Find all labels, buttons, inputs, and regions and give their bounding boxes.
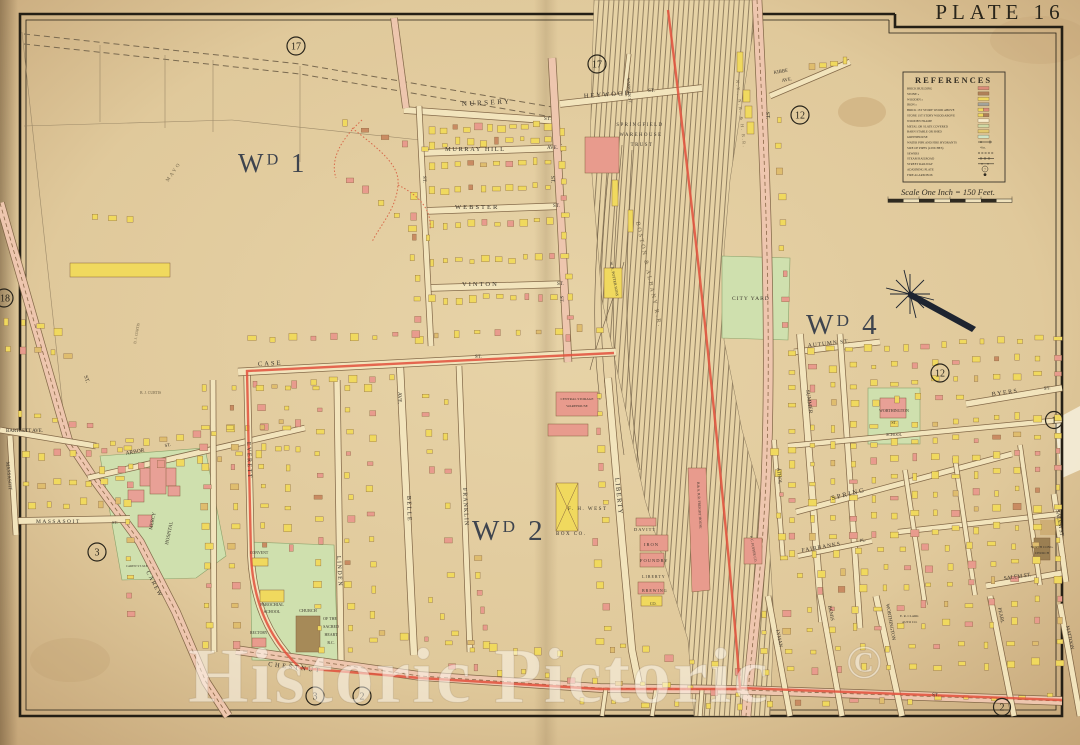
building xyxy=(823,701,830,706)
building xyxy=(871,458,877,465)
building xyxy=(892,513,898,519)
building xyxy=(545,160,551,164)
building xyxy=(1055,372,1062,376)
building xyxy=(127,593,132,598)
building xyxy=(204,603,208,608)
building xyxy=(561,213,569,217)
building xyxy=(890,382,898,386)
building xyxy=(54,479,61,485)
building xyxy=(87,423,93,428)
building xyxy=(232,386,236,390)
building xyxy=(812,668,818,675)
building xyxy=(315,517,323,522)
place-label-clark-auto: E. R. CLARK xyxy=(900,614,919,618)
building xyxy=(495,222,501,226)
building xyxy=(544,124,552,131)
building xyxy=(850,699,859,703)
building xyxy=(506,161,513,166)
building xyxy=(897,606,904,611)
building xyxy=(1047,693,1053,697)
building xyxy=(780,220,786,225)
building xyxy=(495,330,501,336)
building xyxy=(789,371,795,375)
building xyxy=(193,431,201,438)
building xyxy=(248,336,256,341)
place-label-foundry: FOUNDRY xyxy=(640,558,669,563)
building xyxy=(912,380,918,384)
building xyxy=(872,532,876,538)
legend-item-label: FIRE ALARM BOX xyxy=(907,173,934,177)
building xyxy=(871,380,878,386)
building xyxy=(1058,596,1063,602)
building xyxy=(994,357,998,361)
building xyxy=(887,665,891,670)
building xyxy=(232,582,240,589)
building xyxy=(831,479,835,484)
building xyxy=(870,425,878,429)
building xyxy=(345,408,350,412)
building xyxy=(567,316,573,320)
building xyxy=(547,218,554,225)
building xyxy=(790,518,795,523)
building xyxy=(518,160,526,165)
building xyxy=(205,543,213,549)
svg-text:18: 18 xyxy=(0,294,10,305)
building xyxy=(430,259,434,266)
building xyxy=(1058,617,1063,624)
building xyxy=(456,298,462,305)
building xyxy=(289,333,297,340)
building xyxy=(285,485,290,492)
building xyxy=(783,271,787,277)
building xyxy=(1015,354,1020,360)
building xyxy=(1015,450,1020,455)
building xyxy=(884,564,888,569)
building xyxy=(468,161,474,166)
building xyxy=(568,294,573,300)
building xyxy=(891,361,897,366)
legend-item-label: BARN STABLE OR SHED xyxy=(907,130,942,134)
building xyxy=(415,316,421,322)
building xyxy=(598,412,603,416)
legend-item-label: WATER PIPE AND FIRE HYDRANTS xyxy=(907,141,957,145)
building xyxy=(497,126,505,133)
building xyxy=(1007,661,1015,668)
building xyxy=(789,498,795,502)
building xyxy=(953,456,959,463)
building xyxy=(1013,503,1021,509)
building xyxy=(283,426,291,430)
building xyxy=(838,586,845,592)
building xyxy=(925,566,933,573)
building xyxy=(998,337,1005,343)
building xyxy=(990,622,994,628)
atlas-scan: PLATE 16 xyxy=(0,0,1080,745)
building xyxy=(933,666,941,671)
building xyxy=(144,439,150,446)
building xyxy=(441,189,449,195)
building xyxy=(811,515,815,522)
building xyxy=(956,395,963,399)
place-label-warehouse-trust: SPRINGFIELD xyxy=(616,123,663,128)
building xyxy=(995,491,999,497)
place-label-west-box: BOX CO. xyxy=(556,532,587,537)
building xyxy=(831,442,835,449)
building xyxy=(18,411,22,417)
building xyxy=(832,400,837,406)
building xyxy=(270,337,275,342)
building xyxy=(973,488,979,495)
building xyxy=(469,295,476,302)
building xyxy=(875,626,882,630)
building xyxy=(874,607,882,611)
building xyxy=(789,461,795,468)
street-label-st: ST. xyxy=(648,89,655,94)
building xyxy=(807,628,812,632)
building xyxy=(891,474,897,478)
building xyxy=(897,623,904,628)
building xyxy=(830,515,835,520)
building xyxy=(851,443,857,448)
building xyxy=(346,178,354,183)
building xyxy=(594,560,602,567)
long-shed-building xyxy=(70,263,170,277)
building xyxy=(34,414,41,418)
svg-text:12: 12 xyxy=(935,369,945,380)
building xyxy=(402,141,407,147)
building xyxy=(559,161,565,168)
building xyxy=(231,444,238,450)
building xyxy=(116,476,124,480)
ward-label-2: Wᴰ 2 xyxy=(472,515,546,547)
building xyxy=(850,362,857,367)
building xyxy=(972,455,980,460)
place-label-brewery: CO. xyxy=(650,601,657,606)
building xyxy=(47,502,51,508)
building xyxy=(205,563,211,569)
building xyxy=(474,556,482,561)
building xyxy=(393,332,398,336)
building xyxy=(810,443,815,447)
building xyxy=(830,61,837,66)
place-label-central-storage: WAREHOUSE xyxy=(566,404,588,408)
building xyxy=(233,622,241,628)
building xyxy=(1033,557,1041,564)
place-label-church: SACRED xyxy=(323,624,339,629)
building xyxy=(126,519,130,524)
svg-text:3: 3 xyxy=(95,548,100,559)
paper-stain xyxy=(30,638,110,682)
building xyxy=(480,163,487,167)
building xyxy=(319,537,324,544)
building xyxy=(895,396,900,403)
street-label-massasoit: MASSASOIT xyxy=(36,519,81,525)
building xyxy=(944,601,948,607)
street-label-vinton: VINTON xyxy=(462,281,499,288)
building xyxy=(470,260,474,264)
building xyxy=(426,430,432,437)
building xyxy=(952,475,960,479)
building xyxy=(444,400,448,405)
building xyxy=(520,137,524,141)
building xyxy=(381,135,389,140)
legend-swatch xyxy=(978,114,984,117)
building xyxy=(509,258,516,263)
building xyxy=(531,138,540,143)
building xyxy=(372,586,376,593)
building xyxy=(422,394,429,398)
building xyxy=(604,626,611,630)
building xyxy=(818,587,823,594)
legend-item-label: STONE » xyxy=(907,92,920,96)
svg-text:7: 7 xyxy=(984,167,986,171)
building xyxy=(201,503,208,510)
street-label-bartlett: BARTLETT AVE. xyxy=(6,429,43,434)
building xyxy=(176,459,184,466)
building xyxy=(314,495,322,499)
building xyxy=(390,375,395,380)
building xyxy=(993,522,1000,528)
street-label-st: ST. xyxy=(544,117,551,122)
building xyxy=(414,297,420,301)
building xyxy=(561,196,567,201)
building xyxy=(53,418,58,422)
place-label-convent: CONVENT xyxy=(250,551,269,555)
building xyxy=(953,435,959,440)
building xyxy=(1015,526,1019,531)
building xyxy=(885,646,889,652)
building xyxy=(597,328,604,333)
building xyxy=(313,386,319,390)
building xyxy=(788,447,796,453)
building xyxy=(535,254,542,260)
building xyxy=(836,647,841,651)
building xyxy=(202,464,209,471)
building xyxy=(262,543,267,548)
building xyxy=(37,324,45,329)
building xyxy=(54,449,61,456)
building xyxy=(64,504,70,509)
building xyxy=(51,350,55,355)
place-label-church: CHURCH xyxy=(299,608,316,613)
street-label-st: ST. xyxy=(764,112,771,120)
building xyxy=(787,667,794,671)
building xyxy=(789,385,795,390)
building xyxy=(933,422,938,426)
legend-item-label: STREET RAILWAY xyxy=(907,162,934,166)
building xyxy=(349,375,357,382)
building xyxy=(843,57,847,64)
place-label-west-box: F. H. WEST xyxy=(568,507,608,512)
building xyxy=(1015,412,1019,419)
building xyxy=(820,63,827,68)
building xyxy=(993,505,1001,512)
building xyxy=(560,128,564,135)
building xyxy=(913,453,917,461)
building xyxy=(890,496,898,500)
place-label-north-cong: NORTH CONG. xyxy=(1031,545,1054,549)
building xyxy=(545,137,552,142)
building xyxy=(272,385,278,389)
building xyxy=(284,446,289,451)
building xyxy=(369,537,374,542)
building xyxy=(350,333,358,340)
building xyxy=(202,406,207,410)
building xyxy=(945,545,949,551)
parochial-school-building xyxy=(260,590,284,602)
building xyxy=(1011,559,1018,563)
building xyxy=(974,418,979,422)
building xyxy=(810,482,816,486)
building xyxy=(551,295,558,300)
building xyxy=(429,187,435,194)
building xyxy=(362,186,368,193)
building xyxy=(394,213,399,217)
building xyxy=(99,501,104,508)
building xyxy=(318,408,323,412)
place-label-central-storage: CENTRAL STORAGE xyxy=(561,397,594,401)
building xyxy=(211,432,216,436)
building xyxy=(92,214,98,219)
building xyxy=(1054,576,1062,583)
building xyxy=(1033,371,1041,375)
building xyxy=(495,257,502,262)
building xyxy=(39,453,45,460)
place-label-davitt: DAVITT xyxy=(634,527,656,532)
svg-text:17: 17 xyxy=(291,42,301,53)
building xyxy=(1035,617,1040,623)
building xyxy=(344,473,349,479)
building xyxy=(968,561,976,568)
building xyxy=(412,331,420,338)
building xyxy=(778,534,786,540)
building xyxy=(127,575,134,579)
building xyxy=(864,344,872,351)
building xyxy=(21,320,25,326)
building xyxy=(555,329,563,335)
building xyxy=(782,297,790,302)
legend-swatch xyxy=(978,135,989,138)
building xyxy=(789,551,795,557)
ward-label-4: Wᴰ 4 xyxy=(806,309,880,341)
svg-text:17: 17 xyxy=(592,60,602,71)
building xyxy=(349,495,354,500)
building xyxy=(994,415,999,419)
building xyxy=(367,512,374,516)
building xyxy=(204,485,212,489)
building xyxy=(463,127,470,132)
building xyxy=(811,425,815,430)
building xyxy=(936,395,943,400)
building xyxy=(1035,335,1043,340)
building xyxy=(909,644,915,648)
building xyxy=(318,626,322,631)
building xyxy=(603,500,608,504)
building xyxy=(440,128,447,134)
legend-item-label: BRICK 1ST STORY WOOD ABOVE xyxy=(907,108,955,112)
legend-swatch xyxy=(978,130,989,133)
building xyxy=(429,142,435,149)
building xyxy=(455,186,461,192)
building xyxy=(110,441,115,445)
building xyxy=(1055,556,1060,561)
building xyxy=(329,377,337,382)
building xyxy=(477,590,482,595)
building xyxy=(157,461,164,468)
building xyxy=(129,464,133,469)
building xyxy=(913,473,917,480)
building xyxy=(853,623,857,630)
building xyxy=(974,472,978,479)
street-label-st: ST. xyxy=(1044,386,1051,392)
building xyxy=(890,532,898,538)
building xyxy=(427,450,433,454)
building xyxy=(469,185,473,190)
building xyxy=(6,346,11,351)
building xyxy=(922,544,929,550)
building xyxy=(520,219,528,226)
building xyxy=(780,493,784,497)
building xyxy=(984,642,988,648)
svg-text:12: 12 xyxy=(795,111,805,122)
building xyxy=(1056,485,1060,490)
building xyxy=(429,127,435,134)
building xyxy=(443,259,447,263)
building xyxy=(370,411,376,416)
building xyxy=(260,425,265,430)
building xyxy=(597,394,601,398)
building xyxy=(1057,639,1063,644)
place-label-school: SCHOOL xyxy=(264,609,281,614)
building xyxy=(969,580,974,585)
street-label-st: ST. xyxy=(932,693,939,698)
building xyxy=(127,611,135,617)
building xyxy=(597,428,601,435)
building xyxy=(285,386,290,390)
building xyxy=(256,451,262,458)
legend-swatch xyxy=(978,108,984,111)
building xyxy=(506,138,514,142)
street-label-st: ST. xyxy=(558,296,563,303)
building xyxy=(69,422,76,427)
legend-swatch xyxy=(978,97,989,100)
street-label-st: ST. xyxy=(112,520,118,525)
building xyxy=(455,162,461,166)
building xyxy=(546,186,551,190)
building xyxy=(347,429,354,434)
building xyxy=(348,516,355,522)
building xyxy=(948,564,953,571)
legend-swatch xyxy=(978,119,989,122)
building xyxy=(429,467,434,474)
building xyxy=(511,296,517,301)
building xyxy=(850,516,857,521)
building xyxy=(599,482,606,487)
building xyxy=(259,464,264,468)
building xyxy=(99,467,104,474)
street-label-webster: WEBSTER xyxy=(455,204,499,211)
building xyxy=(373,336,377,340)
building xyxy=(284,524,292,532)
building xyxy=(808,364,816,369)
building xyxy=(525,294,529,300)
legend-symbol-pipesize: 4 in. xyxy=(980,146,986,150)
convent-building xyxy=(252,558,268,566)
building xyxy=(984,664,988,671)
building xyxy=(788,351,795,356)
building xyxy=(851,400,859,406)
building xyxy=(127,538,134,543)
